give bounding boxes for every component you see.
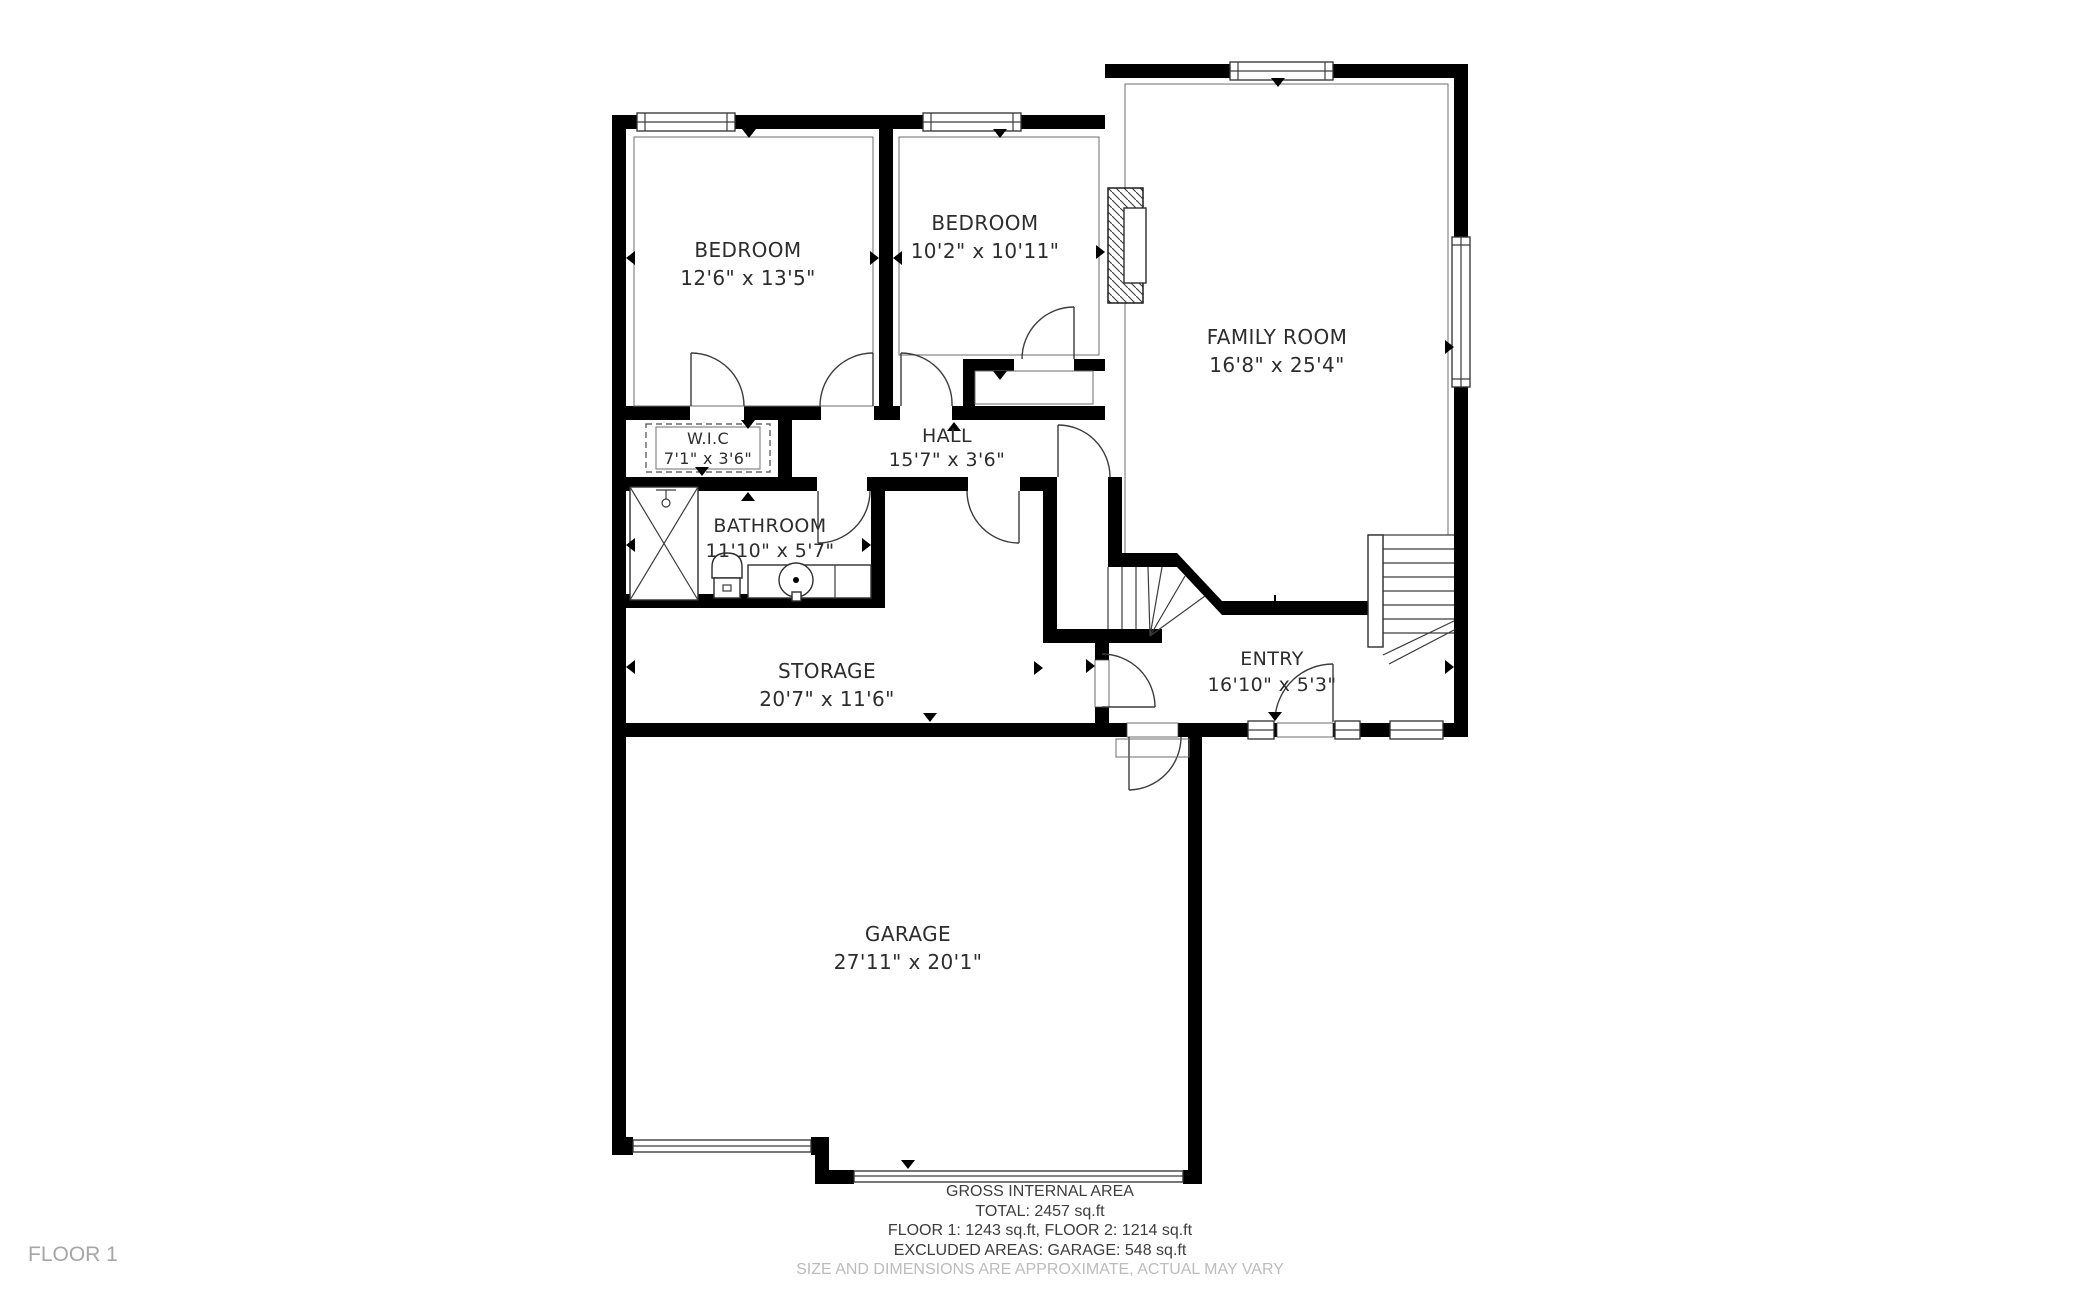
bedroom1-window: [637, 113, 735, 131]
vanity: [748, 563, 871, 601]
entry-garage-opening: [1127, 723, 1178, 737]
bedroom2-hall-door: [901, 353, 952, 406]
bedroom1-hall-door: [820, 353, 873, 406]
bathroom-dims: 11'10" x 5'7": [706, 540, 835, 562]
hall-label: HALL: [922, 425, 972, 447]
entry-window-left: [1248, 721, 1274, 739]
walls: [612, 64, 1468, 1184]
floorplan-svg: BEDROOM 12'6" x 13'5" BEDROOM 10'2" x 10…: [0, 0, 2080, 1299]
floor-number-label: FLOOR 1: [28, 1243, 118, 1267]
garage-label: GARAGE: [865, 922, 951, 946]
main-staircase: [1368, 535, 1454, 664]
family-room-dims: 16'8" x 25'4": [1209, 353, 1345, 377]
total-area: TOTAL: 2457 sq.ft: [0, 1202, 2080, 1222]
storage-door: [967, 491, 1019, 543]
wic-dims: 7'1" x 3'6": [664, 449, 752, 468]
wic-label: W.I.C: [687, 429, 729, 448]
entry-storage-opening: [1095, 660, 1109, 707]
disclaimer: SIZE AND DIMENSIONS ARE APPROXIMATE, ACT…: [0, 1260, 2080, 1280]
entry-window-right: [1390, 721, 1443, 739]
bedroom1-wic-door: [691, 353, 744, 406]
gross-internal-area-title: GROSS INTERNAL AREA: [0, 1182, 2080, 1202]
excluded-areas: EXCLUDED AREAS: GARAGE: 548 sq.ft: [0, 1241, 2080, 1261]
footer-summary: GROSS INTERNAL AREA TOTAL: 2457 sq.ft FL…: [0, 1182, 2080, 1280]
floorplan-page: { "rooms": { "bedroom1": {"name": "BEDRO…: [0, 0, 2080, 1299]
entry-dims: 16'10" x 5'3": [1208, 674, 1337, 696]
garage-door-right: [854, 1171, 1183, 1182]
bedroom1-dims: 12'6" x 13'5": [680, 266, 816, 290]
bedroom2-label: BEDROOM: [931, 211, 1038, 235]
front-door-opening: [1277, 723, 1333, 737]
family-room-right-window: [1452, 237, 1470, 387]
garage-door-left: [633, 1140, 811, 1152]
entry-label: ENTRY: [1240, 648, 1303, 670]
storage-dims: 20'7" x 11'6": [759, 687, 895, 711]
family-room-top-window: [1230, 62, 1333, 80]
bathroom-label: BATHROOM: [713, 515, 826, 537]
bedroom2-closet-door: [1022, 307, 1074, 359]
bedroom2-dims: 10'2" x 10'11": [911, 239, 1060, 263]
entry-sidelite: [1335, 721, 1360, 739]
bedroom1-label: BEDROOM: [694, 238, 801, 262]
storage-label: STORAGE: [778, 659, 876, 683]
entry-garage-door: [1129, 737, 1181, 790]
shower: [630, 487, 698, 600]
entry-storage-door: [1102, 654, 1155, 707]
hall-landing-door: [1058, 425, 1110, 477]
hall-dims: 15'7" x 3'6": [889, 449, 1006, 471]
fireplace: [1108, 188, 1146, 303]
bedroom2-window: [923, 113, 1021, 131]
garage-dims: 27'11" x 20'1": [834, 950, 983, 974]
floor-areas: FLOOR 1: 1243 sq.ft, FLOOR 2: 1214 sq.ft: [0, 1221, 2080, 1241]
family-room-label: FAMILY ROOM: [1207, 325, 1348, 349]
